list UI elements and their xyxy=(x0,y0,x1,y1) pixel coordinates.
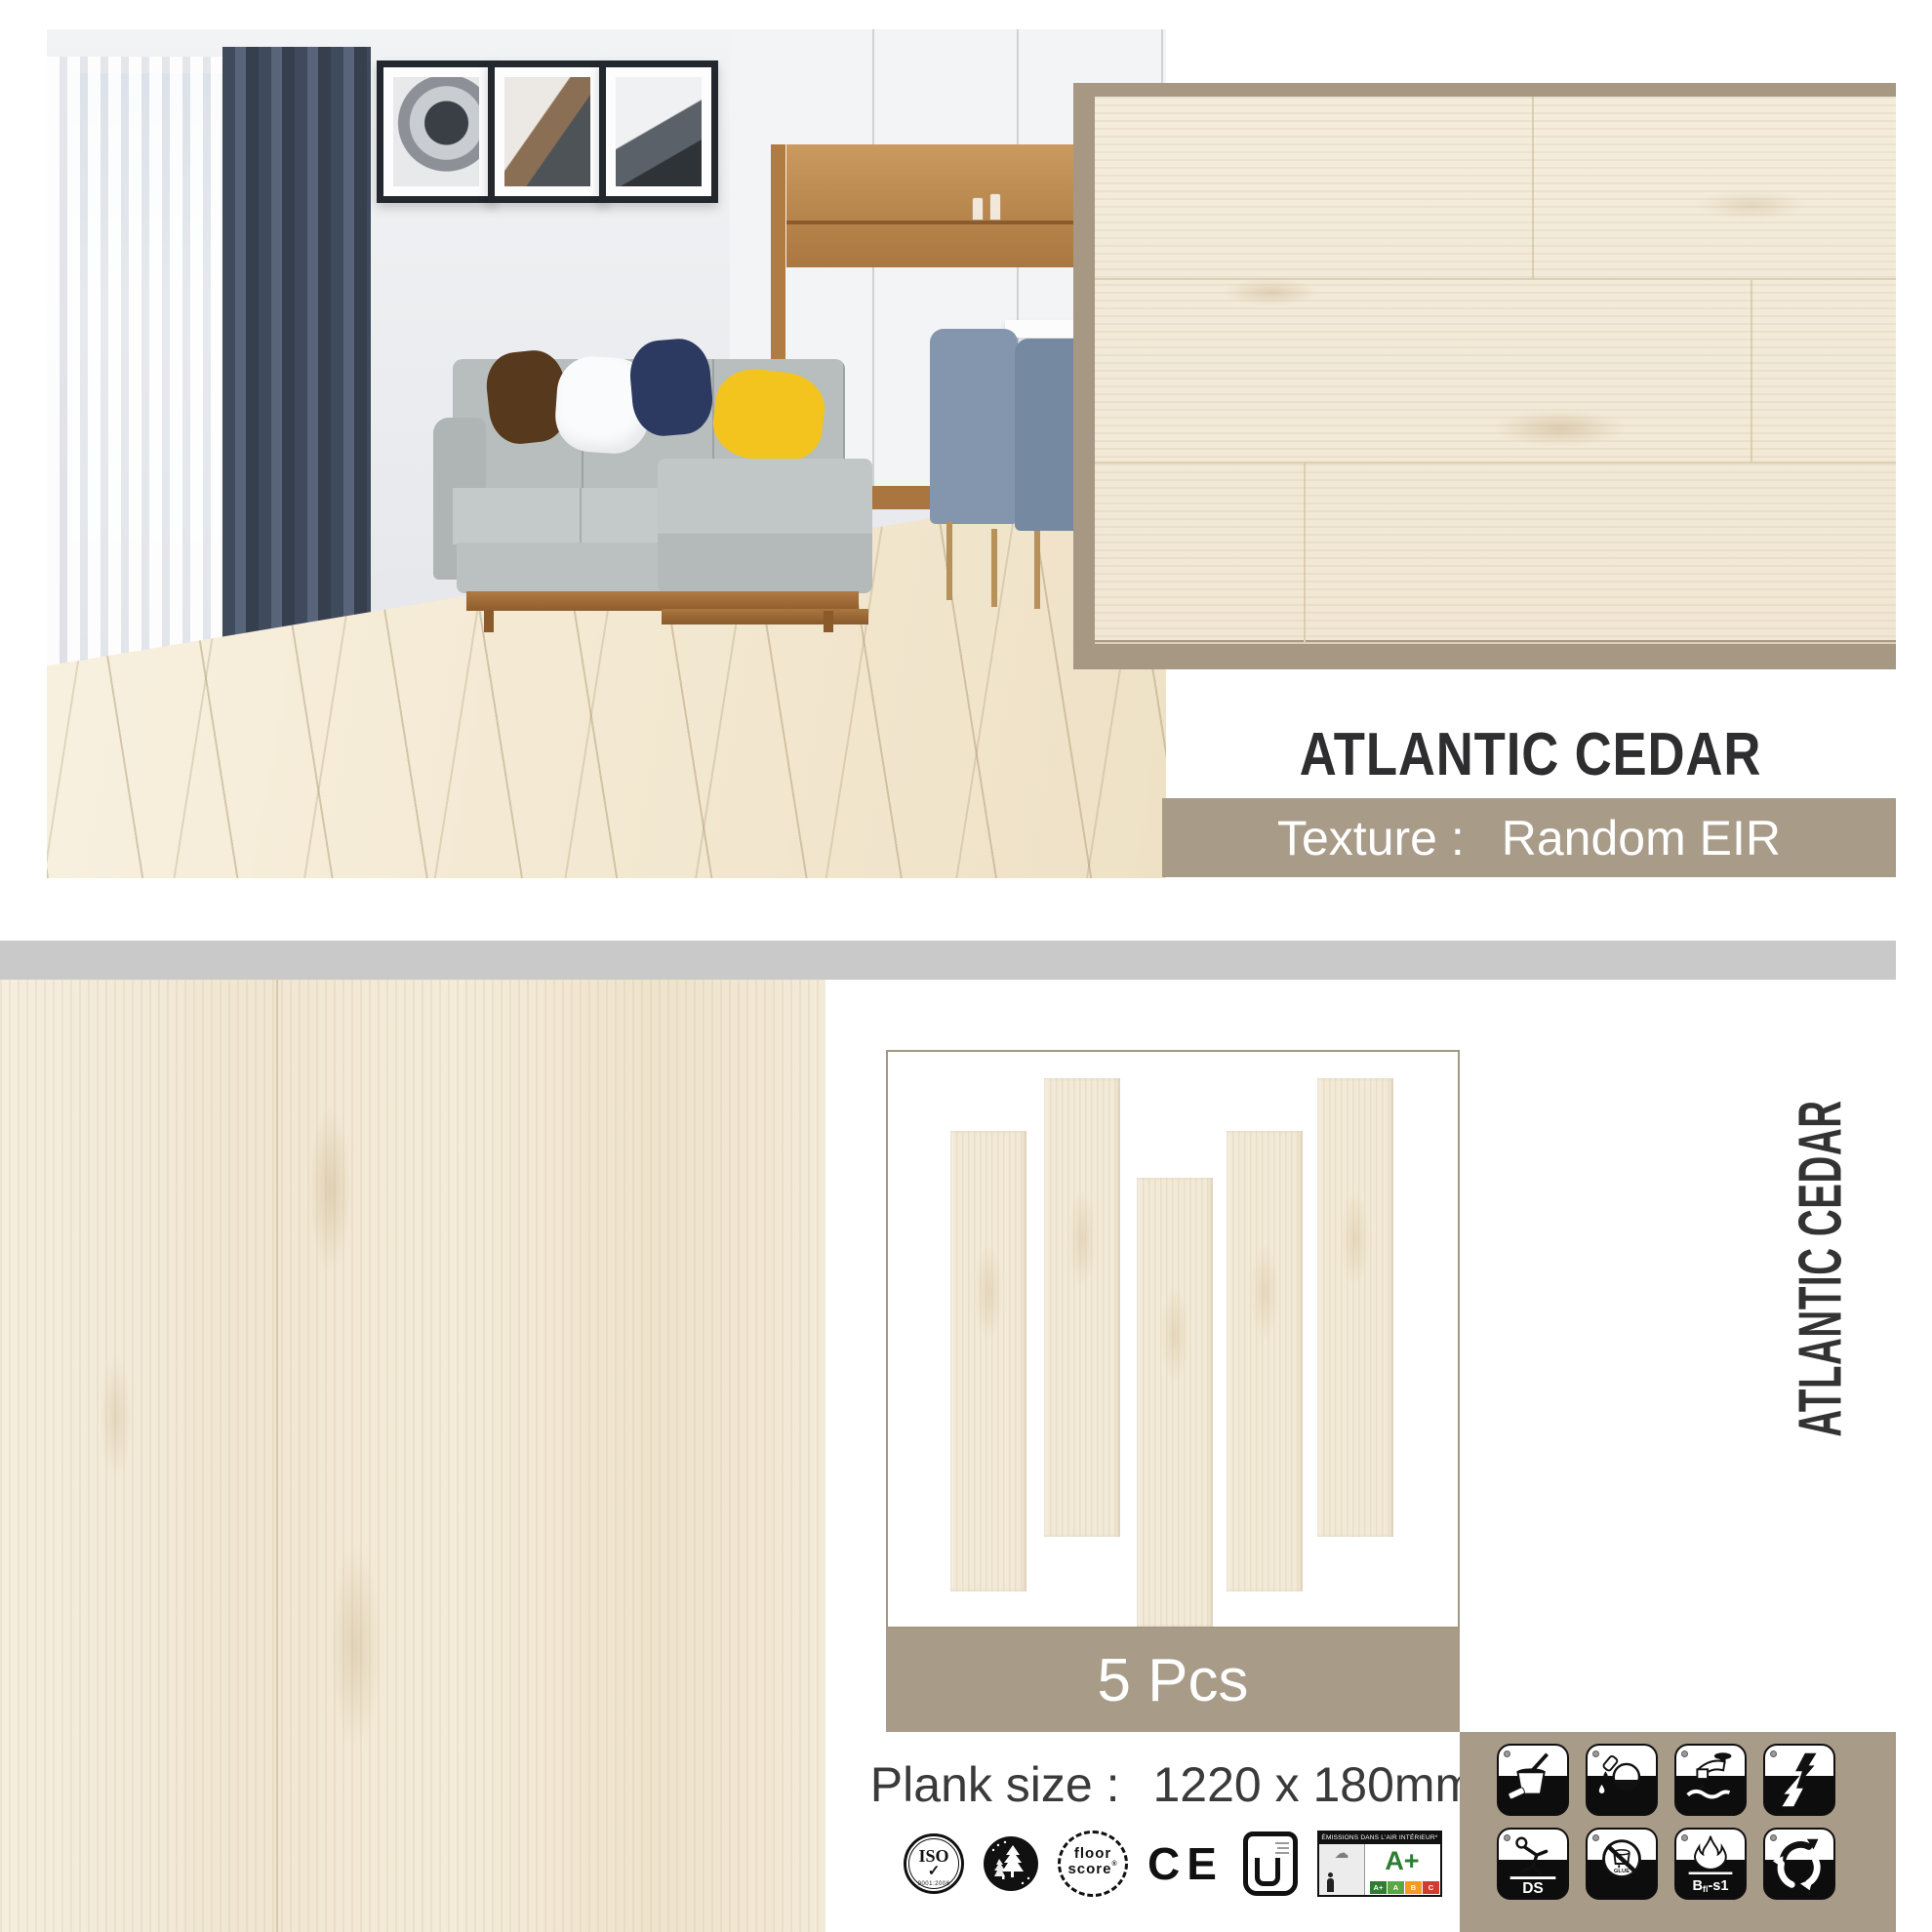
fire-rating-icon: Bfl-s1 xyxy=(1674,1828,1747,1900)
plank-sample xyxy=(1227,1131,1303,1591)
wall-art-frame xyxy=(488,60,607,203)
anti-static-icon xyxy=(1763,1744,1835,1816)
plank-sample xyxy=(950,1131,1026,1591)
floorscore-icon: floor score® xyxy=(1058,1831,1128,1897)
ul-text-line xyxy=(1275,1842,1289,1844)
stain-resistant-icon xyxy=(1586,1744,1658,1816)
chair-leg xyxy=(991,529,997,607)
cloud-icon: ☁ xyxy=(1334,1845,1348,1862)
emissions-scale: A+ A B C xyxy=(1370,1881,1439,1894)
plank-size-label: Plank size : xyxy=(870,1756,1120,1813)
texture-value: Random EIR xyxy=(1502,810,1781,866)
pieces-count: 5 Pcs xyxy=(1097,1646,1248,1715)
texture-label: Texture : xyxy=(1277,810,1465,866)
emissions-label: ÉMISSIONS DANS L'AIR INTÉRIEUR* ☁ A+ A+ … xyxy=(1317,1831,1442,1897)
ul-letter xyxy=(1255,1858,1280,1886)
flooring-product-sheet: ATLANTIC CEDAR Texture : Random EIR 5 Pc… xyxy=(0,0,1932,1932)
house-icon: ☁ xyxy=(1319,1844,1365,1895)
ce-mark: CE xyxy=(1147,1836,1224,1891)
texture-bar: Texture : Random EIR xyxy=(1162,798,1896,877)
plank-size-value: 1220 x 180mm xyxy=(1152,1756,1475,1813)
living-room-photo xyxy=(47,29,1166,878)
plank-sample xyxy=(1044,1078,1120,1537)
svg-text:DS: DS xyxy=(1522,1880,1544,1897)
ul-mark-icon xyxy=(1243,1831,1298,1896)
easy-clean-icon xyxy=(1497,1744,1569,1816)
artwork xyxy=(393,77,479,186)
dining-chair xyxy=(930,329,1018,524)
shelf xyxy=(786,221,1081,224)
section-divider xyxy=(0,941,1896,980)
plank-size: Plank size : 1220 x 180mm xyxy=(886,1756,1460,1813)
waterproof-icon xyxy=(1674,1744,1747,1816)
sofa-leg xyxy=(484,611,494,632)
ul-text-line xyxy=(1275,1852,1289,1854)
anti-slip-icon: DS xyxy=(1497,1828,1569,1900)
wood-texture-closeup xyxy=(1095,97,1896,640)
product-title: ATLANTIC CEDAR xyxy=(1166,720,1896,789)
sofa-leg xyxy=(824,611,833,632)
feature-icons-grid: DS GLUE Bfl-s1 xyxy=(1497,1744,1835,1900)
chaise-wood-base xyxy=(662,609,868,624)
plank-sample xyxy=(1137,1178,1213,1627)
chair-leg xyxy=(1034,531,1040,609)
iso-14000-icon xyxy=(984,1836,1038,1891)
person-icon xyxy=(1327,1878,1334,1892)
artwork xyxy=(616,77,702,186)
plank-sample xyxy=(1317,1078,1393,1537)
wall-art-frame xyxy=(599,60,718,203)
glue-free-icon: GLUE xyxy=(1586,1828,1658,1900)
texture-swatch-panel xyxy=(1073,83,1896,669)
registered-mark: ® xyxy=(1111,1861,1117,1868)
svg-text:Bfl-s1: Bfl-s1 xyxy=(1693,1878,1729,1894)
wood-niche xyxy=(786,144,1081,267)
pieces-bar: 5 Pcs xyxy=(886,1629,1460,1732)
glassware xyxy=(989,193,1001,221)
chair-leg xyxy=(946,522,952,600)
sofa-chaise xyxy=(658,459,872,593)
floorscore-word: score xyxy=(1067,1861,1111,1877)
iso-9001-icon: ISO ✓ 9001:2008 xyxy=(904,1833,964,1894)
pillow-navy xyxy=(627,337,715,439)
glassware xyxy=(972,197,984,221)
svg-text:GLUE: GLUE xyxy=(1614,1869,1630,1874)
artwork xyxy=(504,77,590,186)
wood-grain-overlay xyxy=(1095,97,1896,640)
sofa-wood-base xyxy=(466,591,859,611)
wall-art-frame xyxy=(377,60,496,203)
emissions-grade: A+ xyxy=(1364,1844,1440,1877)
wood-texture-large xyxy=(0,980,825,1932)
sidebar-vertical-title-text: ATLANTIC CEDAR xyxy=(1787,1100,1856,1436)
recyclable-icon xyxy=(1763,1828,1835,1900)
certifications-row: ISO ✓ 9001:2008 floor score® CE xyxy=(886,1832,1460,1895)
feature-icons-panel: DS GLUE Bfl-s1 xyxy=(1460,1732,1896,1932)
ul-text-line xyxy=(1277,1847,1289,1849)
